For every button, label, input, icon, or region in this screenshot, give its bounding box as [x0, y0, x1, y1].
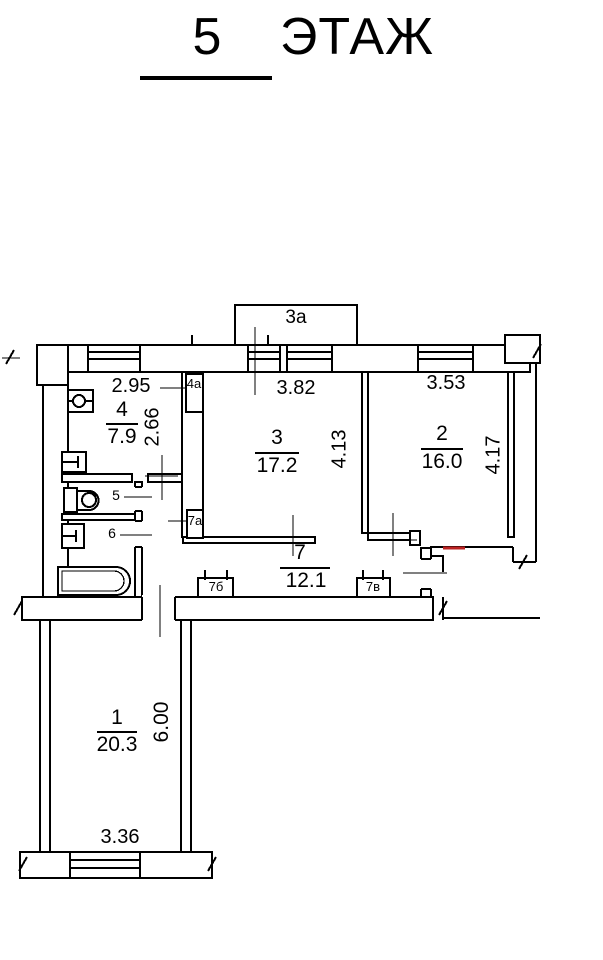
floor-plan-page: 5 ЭТАЖ 3а 2.95 4 7.9 2.66 4а 3.82 3 17.2… [0, 0, 603, 960]
room3-number: 3 [271, 427, 283, 449]
room6-number: 6 [108, 526, 116, 541]
dim-room3-height: 4.13 [329, 430, 352, 469]
title-floor-word: ЭТАЖ [280, 10, 434, 65]
room3-area: 17.2 [257, 455, 298, 477]
closet-7v-label: 7в [366, 580, 380, 594]
door-entry-gap [419, 559, 433, 589]
wall-stairwell [443, 597, 540, 620]
wall-room2-bottom [368, 533, 410, 540]
room2-number: 2 [436, 423, 448, 445]
wall-axis-stubs [192, 335, 268, 345]
wall-wc-bath-divider [62, 514, 135, 520]
floor-plan-drawing [0, 0, 603, 960]
toilet-seat-icon [82, 493, 96, 507]
wall-room2-door-jamb [410, 531, 420, 545]
closet-7b-label: 7б [209, 580, 224, 594]
closet-4a-label: 4а [187, 377, 201, 391]
dim-room4-height: 2.66 [142, 408, 165, 447]
room4-number: 4 [116, 399, 128, 421]
wall-room1-left [40, 620, 50, 852]
dim-room2-width: 3.53 [427, 373, 466, 394]
room7-number: 7 [294, 542, 306, 564]
title-underline [140, 76, 272, 80]
room1-number: 1 [111, 707, 123, 729]
outer-walls [20, 335, 540, 878]
wall-room2-right [508, 372, 514, 537]
window-room1 [71, 853, 139, 877]
toilet-tank-icon [64, 488, 77, 512]
closet-7a-label: 7а [188, 514, 202, 528]
dim-room2-height: 4.17 [483, 436, 506, 475]
interior-walls [62, 372, 514, 597]
balcony-label: 3а [285, 308, 306, 328]
room1-area: 20.3 [97, 734, 138, 756]
room2-area: 16.0 [422, 451, 463, 473]
room7-area: 12.1 [286, 570, 327, 592]
wall-kitchen-bottom [62, 474, 132, 482]
wall-room1-right [181, 620, 191, 852]
dim-room3-width: 3.82 [277, 378, 316, 399]
dim-room1-width: 3.36 [101, 827, 140, 848]
door-bath-gap [133, 521, 144, 547]
room5-number: 5 [112, 488, 120, 503]
door-room1-gap [142, 595, 175, 622]
title-floor-number: 5 [193, 10, 222, 65]
door-wc-gap [133, 487, 144, 511]
wall-middle-horizontal [22, 597, 433, 620]
stove-burner-icon [73, 395, 85, 407]
wall-pilaster-top-right [505, 335, 540, 363]
wall-corner-top-left [37, 345, 68, 385]
wall-room3-room2-divider [362, 372, 368, 533]
wall-kitchen-bottom-jamb [148, 474, 182, 482]
dim-room1-height: 6.00 [150, 702, 174, 743]
room4-area: 7.9 [107, 426, 136, 448]
dim-room4-width: 2.95 [112, 376, 151, 397]
